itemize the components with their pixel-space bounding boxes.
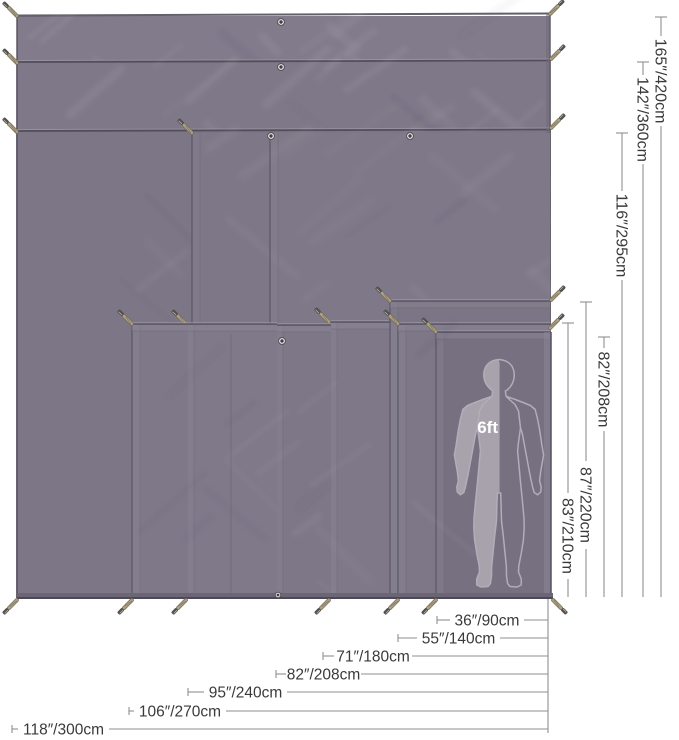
svg-text:106″/270cm: 106″/270cm xyxy=(139,704,221,721)
svg-text:118″/300cm: 118″/300cm xyxy=(23,722,104,739)
svg-text:71″/180cm: 71″/180cm xyxy=(336,649,410,666)
svg-text:116″/295cm: 116″/295cm xyxy=(613,194,630,278)
svg-text:87″/220cm: 87″/220cm xyxy=(577,467,594,543)
svg-text:83″/210cm: 83″/210cm xyxy=(559,498,576,574)
svg-text:82″/208cm: 82″/208cm xyxy=(287,667,361,684)
svg-text:36″/90cm: 36″/90cm xyxy=(455,613,520,630)
svg-text:6ft: 6ft xyxy=(477,418,498,437)
svg-text:82″/208cm: 82″/208cm xyxy=(595,352,612,428)
svg-text:55″/140cm: 55″/140cm xyxy=(422,631,496,648)
svg-text:165″/420cm: 165″/420cm xyxy=(652,39,669,124)
svg-text:142″/360cm: 142″/360cm xyxy=(634,77,651,162)
svg-text:95″/240cm: 95″/240cm xyxy=(209,685,283,702)
